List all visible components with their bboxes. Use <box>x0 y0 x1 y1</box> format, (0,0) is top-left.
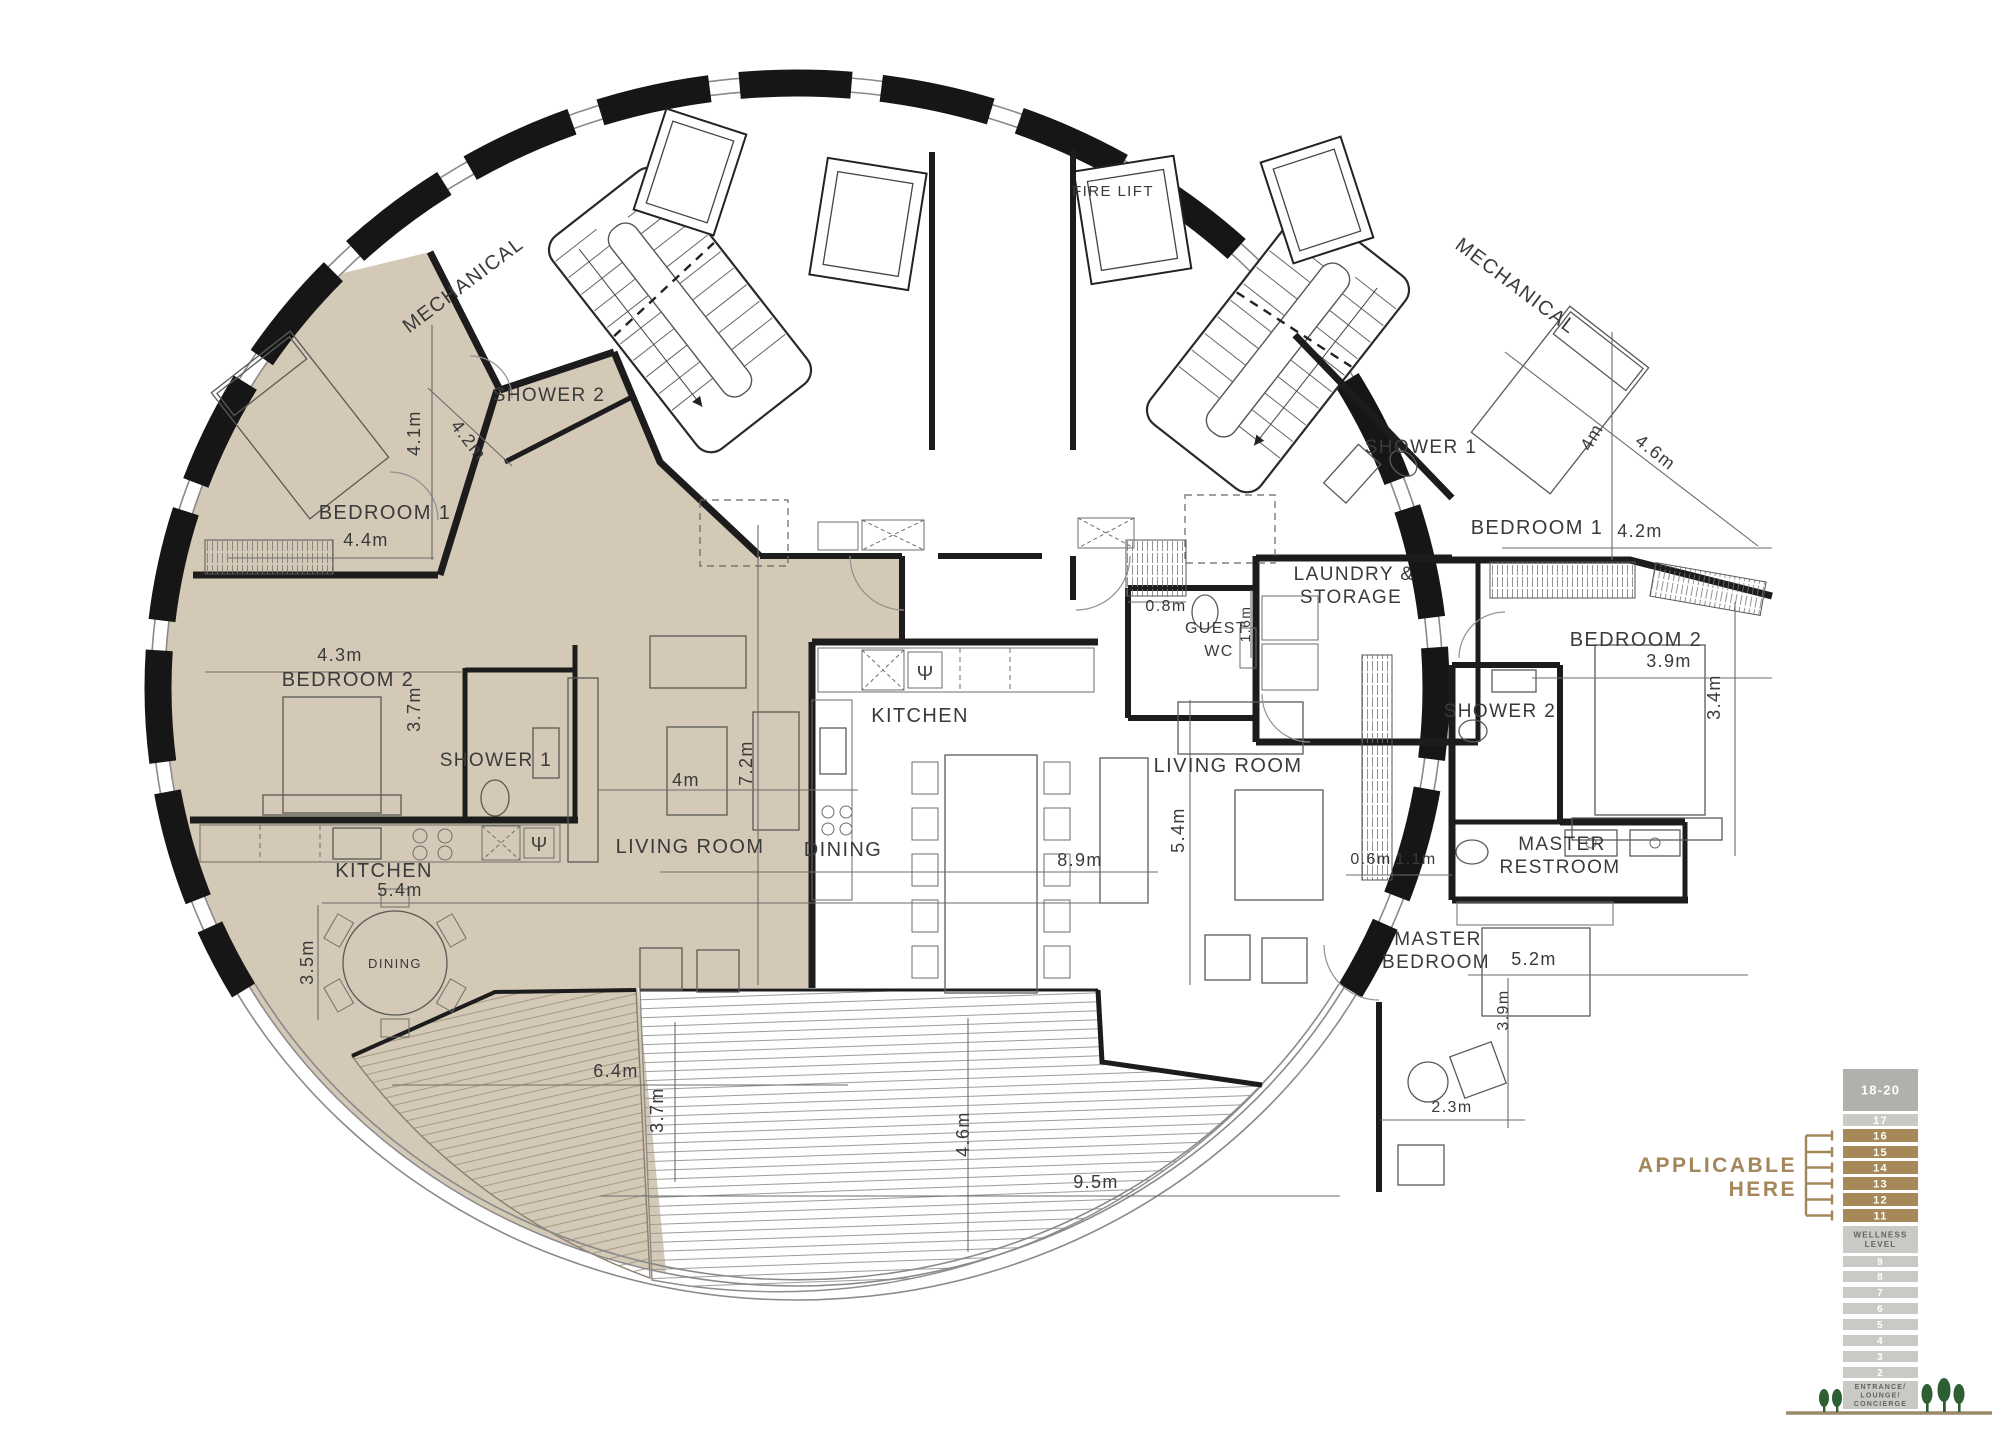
plan-label-3-4m-35: 3.4m <box>1704 674 1724 720</box>
plan-label-4m-22: 4m <box>1576 420 1607 454</box>
plan-label-0-8m-28: 0.8m <box>1145 598 1186 615</box>
plan-label-restroom-44: RESTROOM <box>1500 857 1621 878</box>
plan-label-shower-2-1: SHOWER 2 <box>493 385 606 406</box>
legend-floor-label-17: 17 <box>1873 1115 1888 1127</box>
plan-label-3-7m-8: 3.7m <box>404 686 424 732</box>
plan-label-kitchen-13: KITCHEN <box>335 860 433 882</box>
plan-label-4-3m-6: 4.3m <box>317 645 363 665</box>
plan-label-bedroom-1-24: BEDROOM 1 <box>1471 517 1604 539</box>
legend-floor-label-entrance-lounge-concierge: ENTRANCE/LOUNGE/CONCIERGE <box>1854 1384 1907 1408</box>
plan-label-living-room-12: LIVING ROOM <box>616 836 765 858</box>
legend-floor-label-15: 15 <box>1873 1147 1888 1159</box>
legend-floor-label-14: 14 <box>1873 1162 1888 1174</box>
plan-label-shower-1-9: SHOWER 1 <box>440 750 553 771</box>
legend-floor-label-12: 12 <box>1873 1194 1888 1206</box>
plan-label-living-room-37: LIVING ROOM <box>1154 755 1303 777</box>
plan-label-2-3m-49: 2.3m <box>1431 1099 1472 1116</box>
plan-label-1-6m-31: 1.6m <box>1237 606 1253 643</box>
legend-floor-label-16: 16 <box>1873 1130 1888 1142</box>
plan-label-mechanical-20: MECHANICAL <box>1451 234 1580 339</box>
plan-label-wc-30: WC <box>1204 643 1233 660</box>
plan-label-1-1m-42: 1.1m <box>1395 851 1436 868</box>
plan-label-dining-39: DINING <box>804 839 882 861</box>
applicable-here-text-1: HERE <box>1729 1178 1797 1201</box>
plan-label-3-9m-33: 3.9m <box>1646 651 1692 671</box>
plan-label-bedroom-46: BEDROOM <box>1382 952 1490 973</box>
plan-label-0-6m-41: 0.6m <box>1350 851 1391 868</box>
legend-floor-label-7: 7 <box>1877 1288 1884 1299</box>
lift-shaft-left-inner <box>809 158 926 290</box>
plan-label-master-45: MASTER <box>1394 929 1482 950</box>
psi-symbol-right: Ψ <box>917 663 934 685</box>
plan-label-4-4m-5: 4.4m <box>343 530 389 550</box>
plan-label-3-9m-48: 3.9m <box>1495 989 1512 1030</box>
psi-symbol-left: Ψ <box>531 834 548 856</box>
plan-label-4-1m-2: 4.1m <box>404 410 424 456</box>
legend-floor-label-18-20: 18-20 <box>1861 1083 1900 1098</box>
applicable-here-bracket <box>1806 1131 1832 1221</box>
building-level-legend: 18-2017161514131211WELLNESSLEVEL98765432… <box>1638 1069 1918 1409</box>
plan-label-4m-10: 4m <box>672 770 700 790</box>
legend-floor-label-13: 13 <box>1873 1178 1888 1190</box>
plan-label-9-5m-51: 9.5m <box>1073 1172 1119 1192</box>
fire-lift-shaft <box>1074 156 1192 284</box>
plan-label-shower-2-34: SHOWER 2 <box>1444 701 1557 722</box>
terrace-deck-white <box>640 990 1262 1292</box>
plan-label-bedroom-2-7: BEDROOM 2 <box>282 669 415 691</box>
plan-label-4-2m-25: 4.2m <box>1617 521 1663 541</box>
plan-label-bedroom-1-4: BEDROOM 1 <box>319 502 452 524</box>
legend-floor-label-4: 4 <box>1877 1336 1884 1347</box>
legend-floor-label-6: 6 <box>1877 1304 1884 1315</box>
plan-label-8-9m-40: 8.9m <box>1057 850 1103 870</box>
plan-label-5-4m-38: 5.4m <box>1168 807 1188 853</box>
plan-label-6-4m-17: 6.4m <box>593 1061 639 1081</box>
plan-label-5-4m-14: 5.4m <box>377 880 423 900</box>
floor-plan-page: Ψ Ψ <box>0 0 2000 1444</box>
legend-floor-label-3: 3 <box>1877 1352 1884 1363</box>
floor-plan-drawing: Ψ Ψ <box>0 0 2000 1444</box>
plan-label-3-7m-18: 3.7m <box>647 1087 667 1133</box>
plan-label-laundry-26: LAUNDRY & <box>1294 564 1415 585</box>
plan-label-fire-lift-19: FIRE LIFT <box>1072 183 1154 200</box>
plan-label-storage-27: STORAGE <box>1300 587 1402 608</box>
plan-label-kitchen-36: KITCHEN <box>871 705 969 727</box>
plan-label-5-2m-47: 5.2m <box>1511 949 1557 969</box>
plan-label-shower-1-21: SHOWER 1 <box>1365 437 1478 458</box>
legend-floor-label-11: 11 <box>1873 1210 1887 1222</box>
plan-label-3-5m-15: 3.5m <box>297 939 317 985</box>
plan-label-4-6m-50: 4.6m <box>953 1111 973 1157</box>
plan-label-dining-16: DINING <box>368 956 422 971</box>
legend-floor-label-9: 9 <box>1877 1257 1884 1268</box>
plan-label-bedroom-2-32: BEDROOM 2 <box>1570 629 1703 651</box>
legend-floor-label-5: 5 <box>1877 1320 1884 1331</box>
legend-floor-label-8: 8 <box>1877 1272 1884 1283</box>
plan-label-master-43: MASTER <box>1518 834 1606 855</box>
legend-floor-label-2: 2 <box>1877 1368 1884 1379</box>
applicable-here-text-0: APPLICABLE <box>1638 1154 1797 1177</box>
plan-label-7-2m-11: 7.2m <box>736 740 756 786</box>
